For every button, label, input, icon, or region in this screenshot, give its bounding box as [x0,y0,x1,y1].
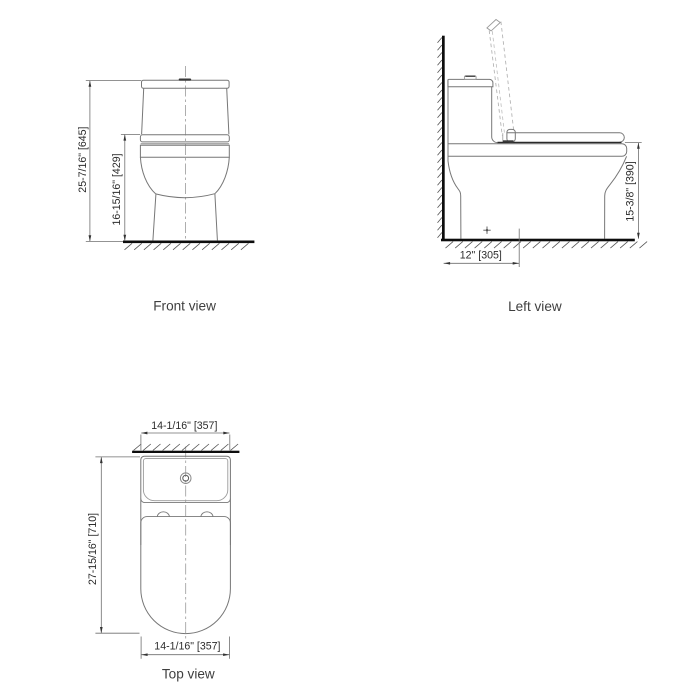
svg-text:25-7/16" [645]: 25-7/16" [645] [77,126,89,192]
svg-text:14-1/16" [357]: 14-1/16" [357] [154,641,220,653]
svg-text:15-3/8" [390]: 15-3/8" [390] [625,161,637,221]
svg-text:16-15/16" [429]: 16-15/16" [429] [111,153,123,225]
svg-text:27-15/16" [710]: 27-15/16" [710] [87,513,99,585]
svg-text:Left view: Left view [508,299,562,314]
svg-text:14-1/16" [357]: 14-1/16" [357] [151,420,217,432]
svg-text:Front view: Front view [153,299,216,314]
svg-text:12" [305]: 12" [305] [460,249,502,261]
svg-text:Top view: Top view [162,667,215,682]
